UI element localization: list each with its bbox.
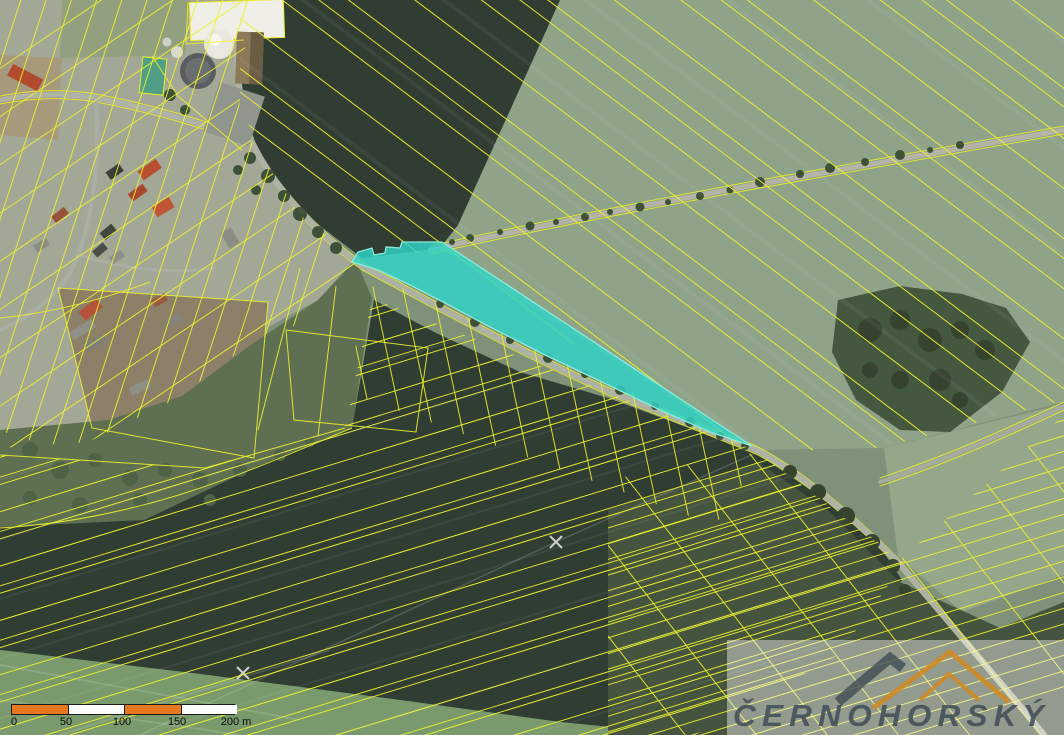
scale-label: 50 <box>60 716 72 728</box>
scale-segment <box>12 705 69 714</box>
scale-label: 200 m <box>221 716 252 728</box>
watermark: ČERNOHORSKÝ <box>727 640 1064 735</box>
scale-bar-segments <box>11 704 235 715</box>
watermark-text: ČERNOHORSKÝ <box>733 698 1050 734</box>
scale-segment <box>182 705 238 714</box>
scale-label: 0 <box>11 716 17 728</box>
scale-segment <box>69 705 126 714</box>
scale-segment <box>125 705 182 714</box>
map-viewport[interactable]: 0 50 100 150 200 m ČERNOHORSKÝ <box>0 0 1064 735</box>
aerial-map-canvas[interactable] <box>0 0 1064 735</box>
scale-label: 100 <box>113 716 131 728</box>
scale-label: 150 <box>168 716 186 728</box>
scale-bar: 0 50 100 150 200 m <box>8 701 258 733</box>
